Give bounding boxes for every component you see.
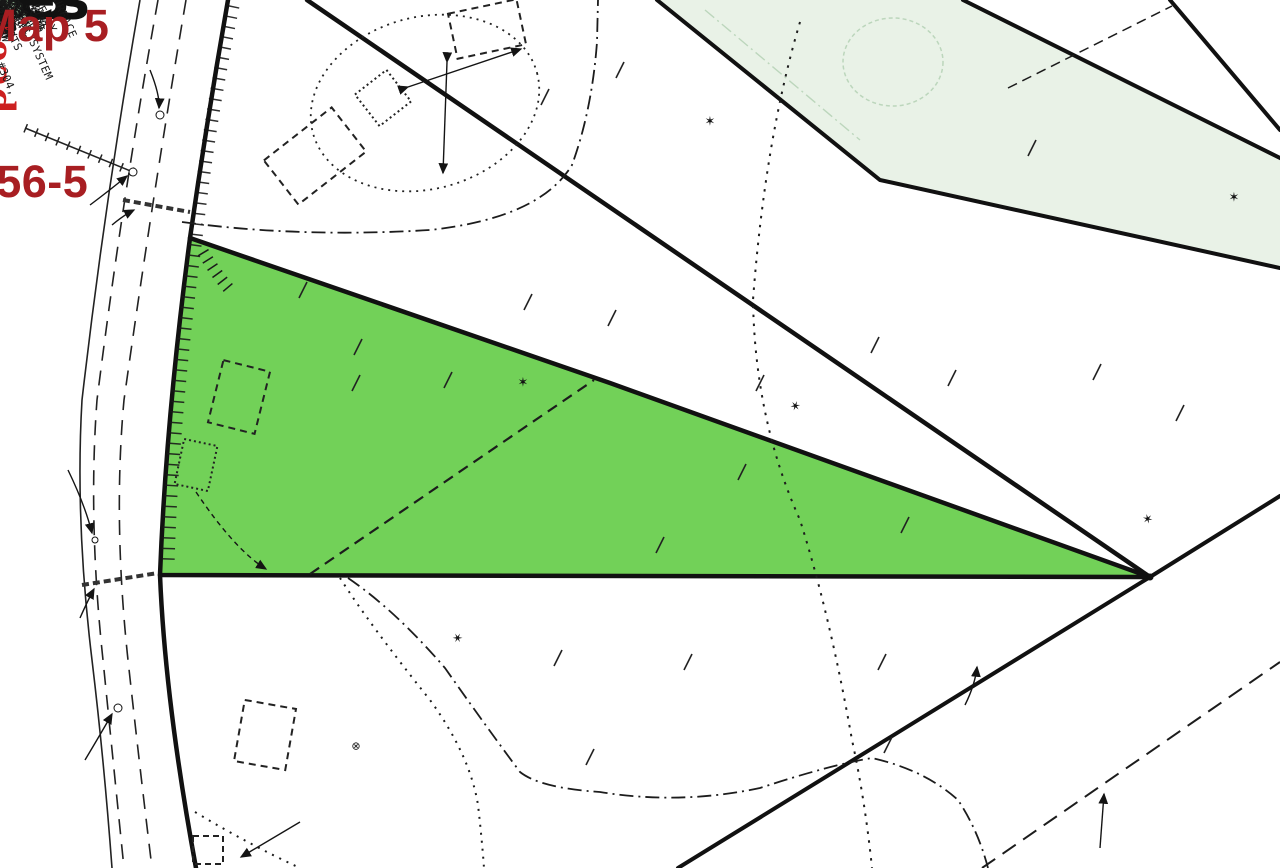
survey-plat-map: R FORMERLY HELLE WILBUR 8 - PG. 60 (LOT … <box>0 0 1280 868</box>
address-line3: Lot 56-5 <box>0 156 152 208</box>
septic-symbol-icon: ⊗ <box>351 740 360 753</box>
wetland-marker-icon: ✶ <box>705 115 716 130</box>
plat-map-canvas <box>0 0 1280 868</box>
wetland-marker-icon: ✶ <box>518 376 529 391</box>
pale-parcel <box>657 0 1280 268</box>
highlighted-parcel-lot5 <box>160 238 1150 577</box>
address-line2: Tax Map 5 <box>0 0 152 52</box>
wetland-marker-icon: ✶ <box>1229 191 1240 206</box>
address-overlay: 56 Loop Road Tax Map 5 Lot 56-5 <box>0 0 152 260</box>
